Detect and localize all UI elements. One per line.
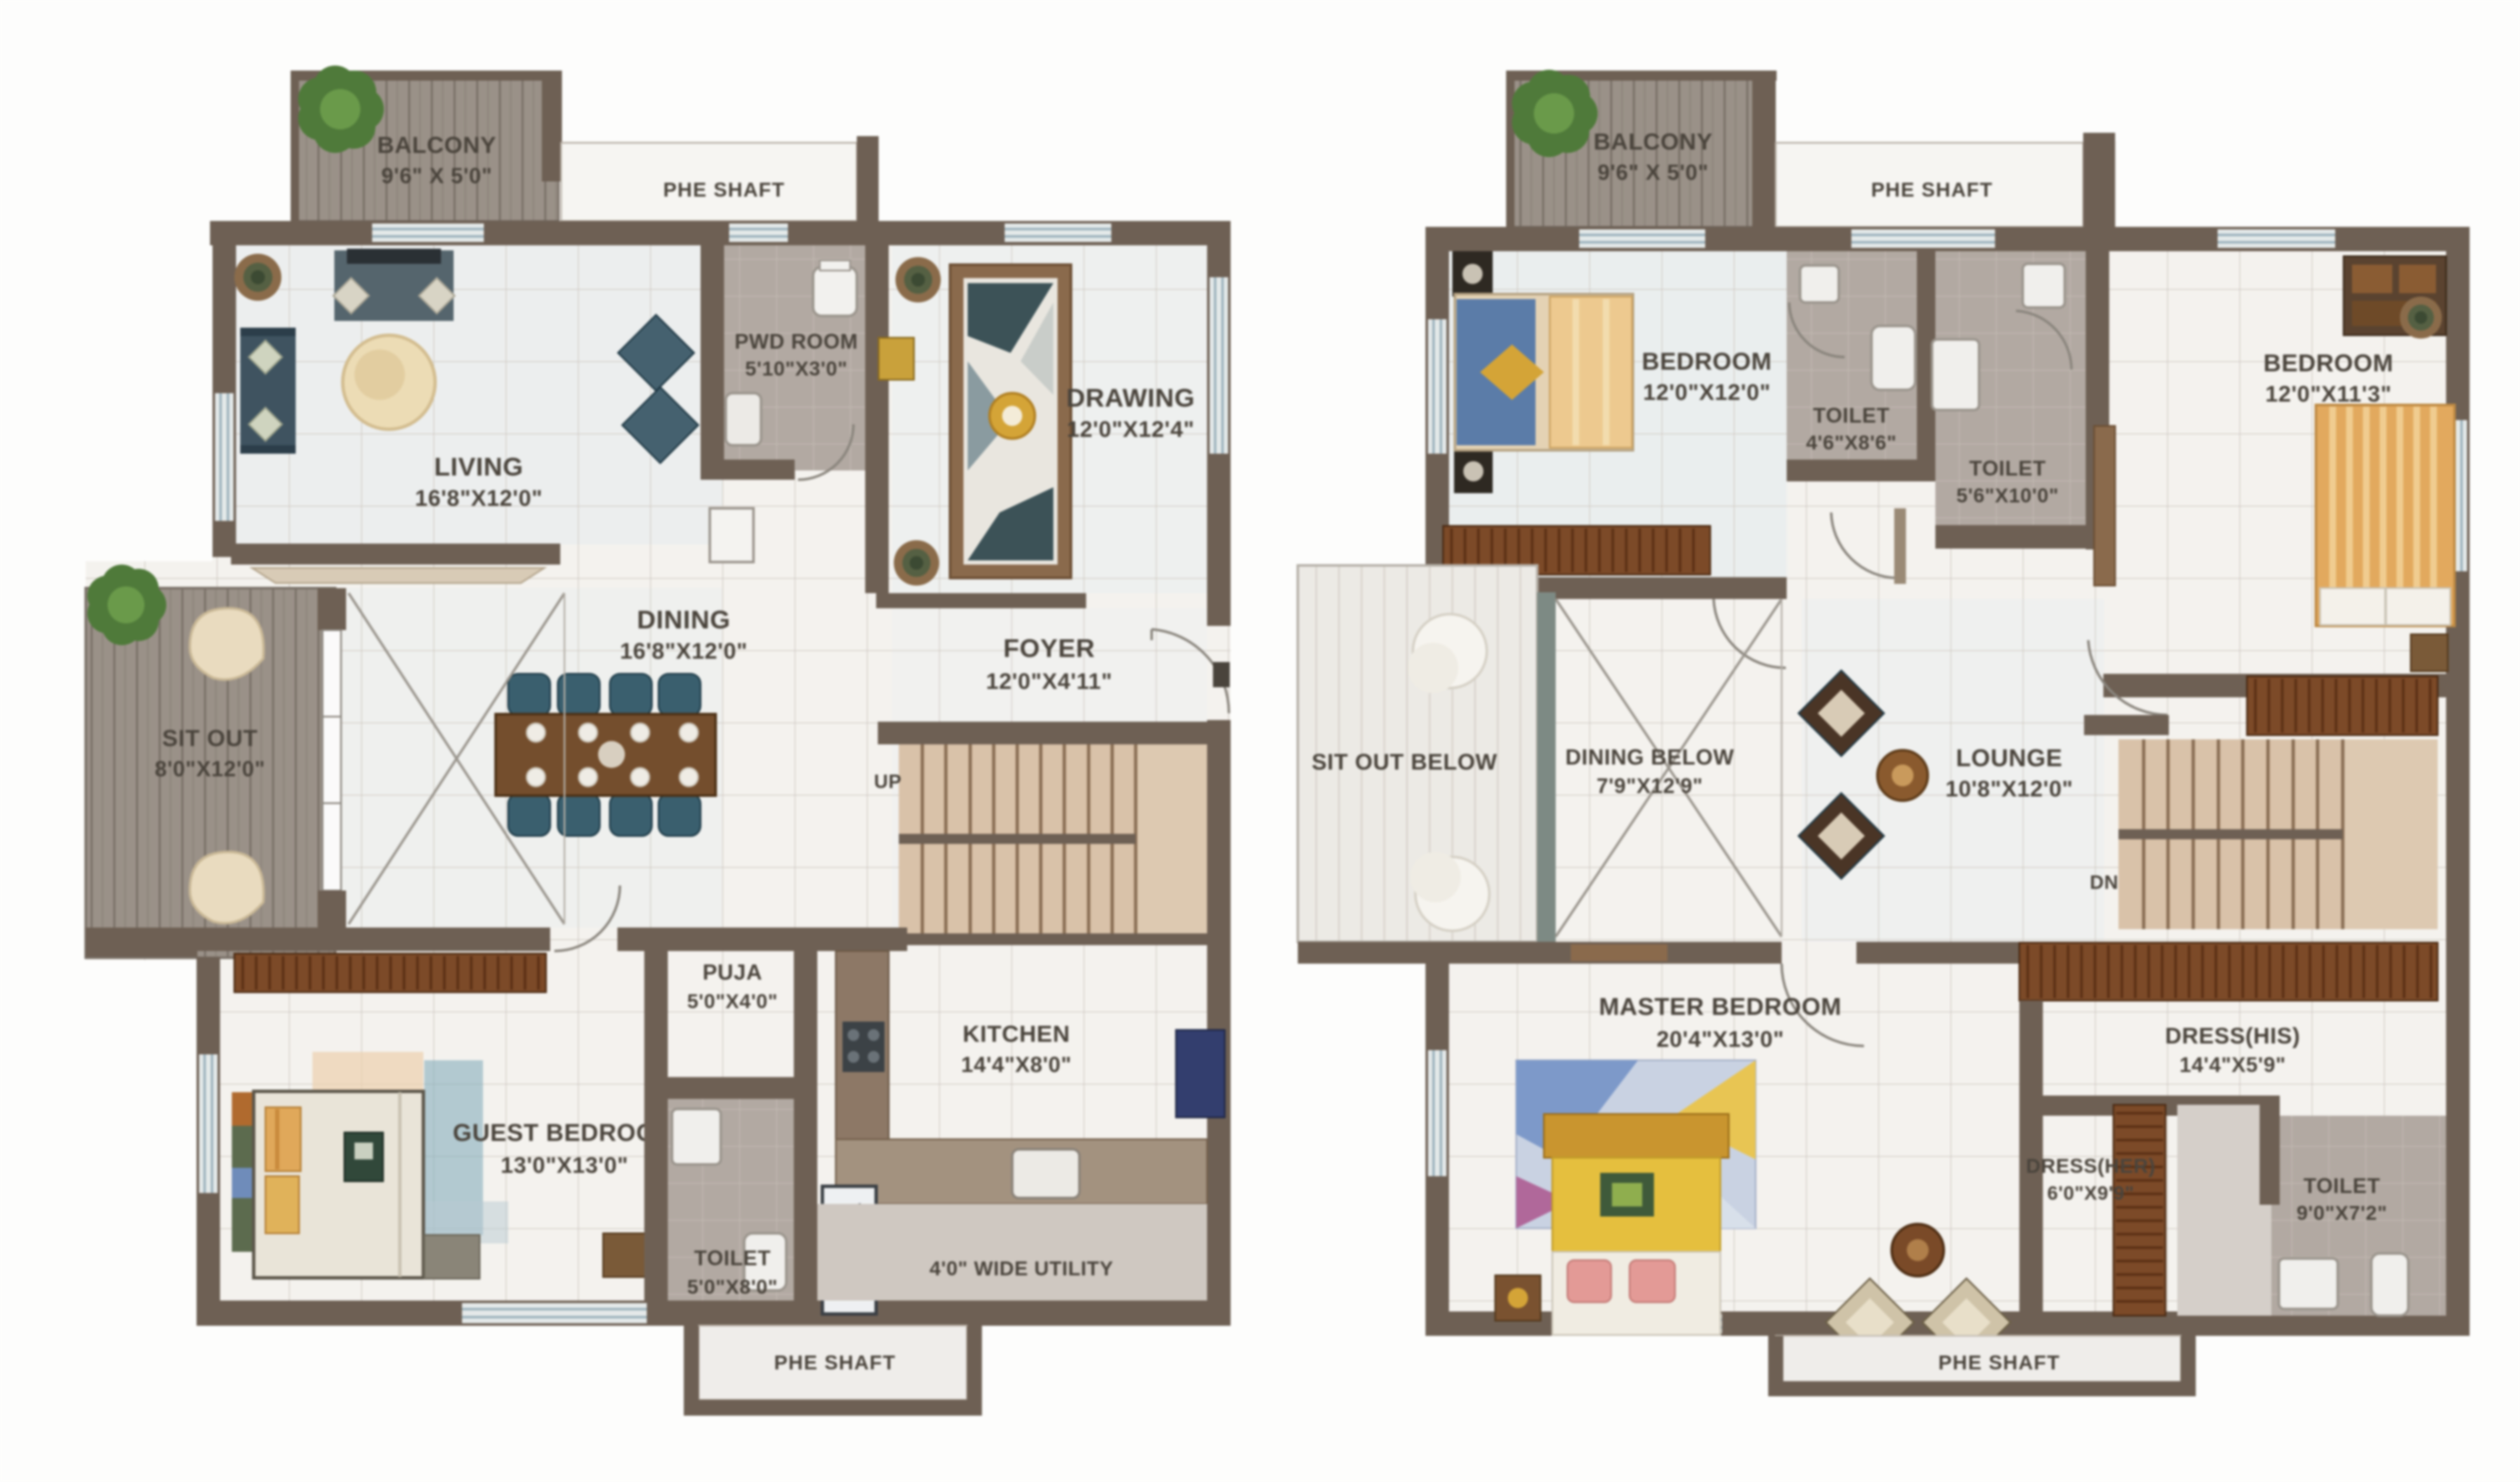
svg-text:DN: DN <box>2090 871 2118 893</box>
svg-text:PUJA: PUJA <box>702 959 762 985</box>
svg-text:LOUNGE: LOUNGE <box>1956 745 2062 772</box>
svg-text:BEDROOM: BEDROOM <box>1642 349 1772 376</box>
svg-text:FOYER: FOYER <box>1003 633 1095 663</box>
svg-text:SIT OUT: SIT OUT <box>162 725 258 751</box>
svg-text:MASTER BEDROOM: MASTER BEDROOM <box>1599 994 1842 1021</box>
svg-text:5'0"X4'0": 5'0"X4'0" <box>687 991 778 1013</box>
svg-text:14'4"X5'9": 14'4"X5'9" <box>2180 1054 2286 1077</box>
svg-text:12'0"X12'4": 12'0"X12'4" <box>1067 417 1194 442</box>
svg-text:UP: UP <box>874 770 902 792</box>
svg-text:PHE SHAFT: PHE SHAFT <box>663 179 785 202</box>
svg-text:DRESS(HER): DRESS(HER) <box>2026 1155 2155 1178</box>
svg-text:4'0" WIDE UTILITY: 4'0" WIDE UTILITY <box>930 1258 1114 1280</box>
svg-text:TOILET: TOILET <box>2303 1175 2380 1198</box>
svg-text:14'4"X8'0": 14'4"X8'0" <box>961 1052 1072 1077</box>
svg-text:PWD ROOM: PWD ROOM <box>734 330 858 354</box>
svg-text:13'0"X13'0": 13'0"X13'0" <box>501 1153 628 1178</box>
svg-text:TOILET: TOILET <box>1969 457 2045 481</box>
svg-text:BALCONY: BALCONY <box>377 132 496 158</box>
svg-text:12'0"X11'3": 12'0"X11'3" <box>2265 381 2392 407</box>
svg-text:12'0"X12'0": 12'0"X12'0" <box>1643 380 1771 405</box>
svg-text:12'0"X4'11": 12'0"X4'11" <box>986 669 1113 694</box>
svg-text:6'0"X9'9": 6'0"X9'9" <box>2047 1182 2134 1204</box>
svg-text:GUEST BEDROOM: GUEST BEDROOM <box>453 1120 676 1147</box>
svg-text:9'0"X7'2": 9'0"X7'2" <box>2297 1202 2387 1225</box>
svg-text:9'6" X 5'0": 9'6" X 5'0" <box>381 163 492 188</box>
svg-text:8'0"X12'0": 8'0"X12'0" <box>155 756 265 781</box>
svg-text:20'4"X13'0": 20'4"X13'0" <box>1656 1027 1784 1052</box>
svg-text:SIT OUT BELOW: SIT OUT BELOW <box>1312 749 1498 775</box>
svg-text:16'8"X12'0": 16'8"X12'0" <box>415 486 543 511</box>
svg-text:PHE SHAFT: PHE SHAFT <box>774 1352 895 1374</box>
svg-text:TOILET: TOILET <box>1813 404 1889 428</box>
svg-text:10'8"X12'0": 10'8"X12'0" <box>1945 776 2073 801</box>
svg-text:7'9"X12'9": 7'9"X12'9" <box>1597 775 1704 798</box>
svg-text:4'6"X8'6": 4'6"X8'6" <box>1806 432 1897 455</box>
svg-text:BEDROOM: BEDROOM <box>2264 350 2394 377</box>
svg-text:9'6" X 5'0": 9'6" X 5'0" <box>1598 160 1709 185</box>
svg-text:BALCONY: BALCONY <box>1593 129 1713 155</box>
svg-text:DINING: DINING <box>637 605 731 634</box>
svg-text:KITCHEN: KITCHEN <box>963 1021 1070 1047</box>
svg-text:5'10"X3'0": 5'10"X3'0" <box>745 358 848 381</box>
svg-text:16'8"X12'0": 16'8"X12'0" <box>620 639 748 664</box>
svg-text:PHE SHAFT: PHE SHAFT <box>1871 179 1992 202</box>
svg-text:DRAWING: DRAWING <box>1066 383 1194 413</box>
svg-text:PHE SHAFT: PHE SHAFT <box>1938 1352 2060 1374</box>
svg-text:LIVING: LIVING <box>434 452 523 481</box>
svg-text:TOILET: TOILET <box>694 1247 770 1270</box>
svg-text:5'6"X10'0": 5'6"X10'0" <box>1956 485 2059 507</box>
svg-text:DRESS(HIS): DRESS(HIS) <box>2165 1023 2300 1048</box>
svg-text:5'0"X8'0": 5'0"X8'0" <box>687 1276 778 1299</box>
svg-text:DINING BELOW: DINING BELOW <box>1566 744 1735 770</box>
